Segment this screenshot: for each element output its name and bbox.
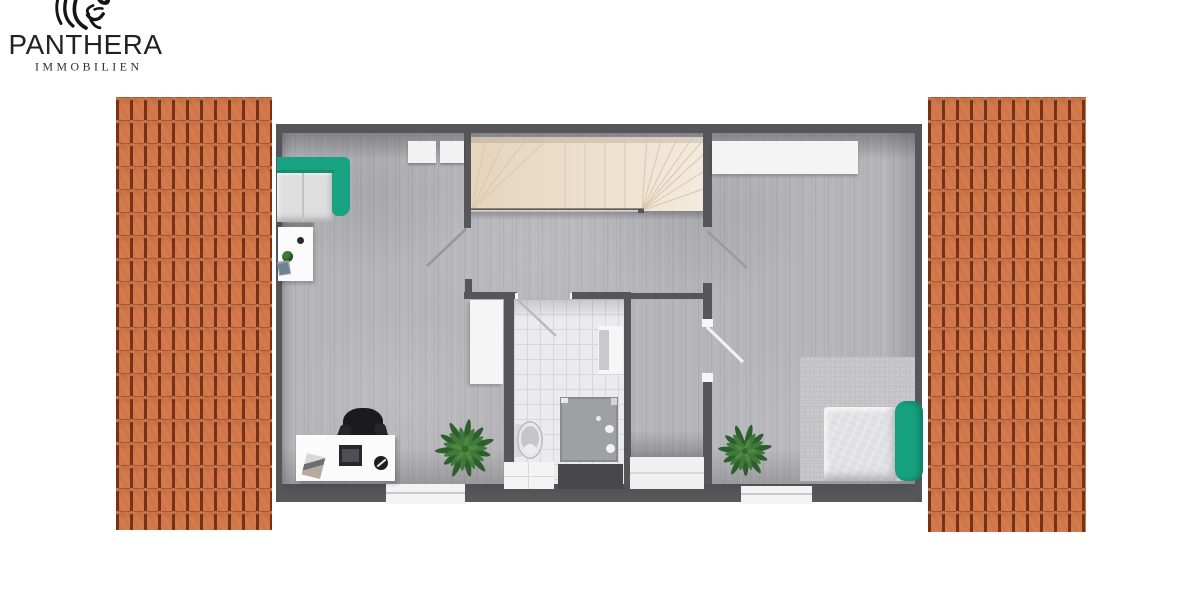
svg-text:PANTHERA: PANTHERA <box>9 29 163 60</box>
svg-text:IMMOBILIEN: IMMOBILIEN <box>35 59 143 73</box>
